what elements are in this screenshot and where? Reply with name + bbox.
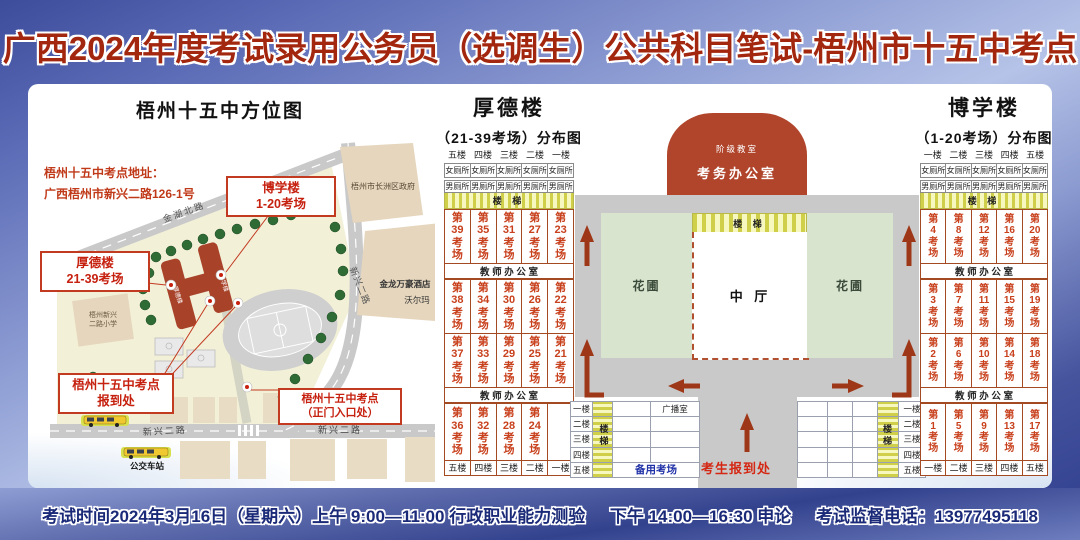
bus-icon-2 (121, 447, 171, 459)
exam-room-cell: 第 6 考 场 (945, 333, 971, 388)
exam-room-cell: 第 2 考 场 (920, 333, 946, 388)
floor-label: 五楼 (444, 460, 471, 476)
houde-male-toilets: 男厕所 男厕所 男厕所 男厕所 男厕所 (444, 180, 574, 193)
garden-right: 花圃 (807, 213, 893, 358)
houde-floors-bottom: 五楼 四楼 三楼 二楼 一楼 (444, 460, 574, 476)
floor-label: 四楼 (997, 148, 1023, 162)
exam-room-cell: 第 13 考 场 (996, 403, 1022, 461)
checkin-label: 考生报到处 (701, 458, 771, 477)
annex-stairs-cell (593, 432, 613, 447)
floor-label: 二楼 (946, 148, 972, 162)
callout-boxue: 博学楼 1-20考场 (226, 176, 336, 217)
annex-stairs-cell (593, 402, 613, 417)
exam-room-cell: 第 31 考 场 (496, 209, 523, 264)
annex-stairs-cell (878, 417, 899, 432)
boxue-male-toilets: 男厕所 男厕所 男厕所 男厕所 男厕所 (920, 180, 1048, 193)
floor-label: 二楼 (521, 460, 548, 476)
exam-room-cell: 第 7 考 场 (945, 279, 971, 334)
female-toilet-cell: 女厕所 (1022, 163, 1048, 178)
female-toilet-cell: 女厕所 (945, 163, 971, 178)
exam-room-cell: 第 12 考 场 (971, 209, 997, 264)
annex-cell (853, 432, 878, 447)
exam-room-cell: 第 32 考 场 (470, 403, 497, 461)
annex-cell (651, 448, 700, 463)
road-bottom (575, 358, 919, 397)
annex-stairs-cell (878, 448, 899, 463)
houde-name: 厚德楼 (419, 92, 599, 122)
exam-room-cell: 第 38 考 场 (444, 279, 471, 334)
boxue-office-1: 教 师 办 公 室 (920, 263, 1048, 279)
floor-label: 一楼 (920, 460, 946, 476)
exam-room-cell: 第 11 考 场 (971, 279, 997, 334)
exam-room-cell: 第 29 考 场 (496, 333, 523, 388)
exam-room-cell: 第 28 考 场 (496, 403, 523, 461)
exam-room-cell: 第 35 考 场 (470, 209, 497, 264)
footer-session2: 下午 14:00—16:30 申论 (610, 502, 791, 527)
annex-stairs-cell (593, 448, 613, 463)
boxue-office-2: 教 师 办 公 室 (920, 387, 1048, 403)
annex-cell (613, 402, 651, 417)
exam-room-cell: 第 25 考 场 (521, 333, 548, 388)
road-label-xinxing-bottom-left: 新兴二路 (143, 424, 188, 437)
boxue-exam-row-3: 第 2 考 场 第 6 考 场 第 10 考 场 第 14 考 场 第 18 考… (920, 333, 1048, 388)
page-title: 广西2024年度考试录用公务员（选调生）公共科目笔试-梧州市十五中考点 (0, 22, 1080, 70)
floor-label: 四楼 (996, 460, 1022, 476)
exam-room-cell: 第 27 考 场 (521, 209, 548, 264)
floor-label: 三楼 (496, 148, 522, 162)
boxue-floors-bottom: 一楼 二楼 三楼 四楼 五楼 (920, 460, 1048, 476)
female-toilet-cell: 女厕所 (971, 163, 997, 178)
bus-station-label-2: 公交车站 (130, 461, 165, 471)
map-title: 梧州十五中方位图 (70, 96, 370, 123)
boxue-floors-top: 一楼 二楼 三楼 四楼 五楼 (920, 148, 1048, 162)
exam-room-cell: 第 18 考 场 (1022, 333, 1048, 388)
exam-room-cell: 第 30 考 场 (496, 279, 523, 334)
footer-session1: 考试时间2024年3月16日（星期六）上午 9:00—11:00 行政职业能力测… (42, 502, 585, 527)
houde-exam-row-1: 第 39 考 场 第 35 考 场 第 31 考 场 第 27 考 场 第 23… (444, 209, 574, 264)
exam-room-cell: 第 21 考 场 (547, 333, 574, 388)
annex-cell (798, 432, 828, 447)
annex-cell (828, 417, 853, 432)
annex-cell (853, 463, 878, 478)
exam-room-cell: 第 14 考 场 (996, 333, 1022, 388)
exam-room-cell: 第 1 考 场 (920, 403, 946, 461)
exam-room-cell: 第 34 考 场 (470, 279, 497, 334)
exam-room-cell: 第 22 考 场 (547, 279, 574, 334)
houde-exam-row-4: 第 36 考 场 第 32 考 场 第 28 考 场 第 24 考 场 (444, 403, 574, 461)
annex-cell (613, 432, 651, 447)
annex-cell (651, 432, 700, 447)
hotel-building (357, 223, 435, 321)
boxue-stairs: 楼 梯 (920, 192, 1048, 209)
male-toilet-cell: 男厕所 (547, 180, 574, 193)
annex-cell (798, 448, 828, 463)
footer-bar: 考试时间2024年3月16日（星期六）上午 9:00—11:00 行政职业能力测… (0, 488, 1080, 540)
male-toilet-cell: 男厕所 (444, 180, 471, 193)
houde-office-2: 教 师 办 公 室 (444, 387, 574, 403)
floor-label: 四楼 (470, 460, 497, 476)
exam-room-cell: 第 26 考 场 (521, 279, 548, 334)
male-toilet-cell: 男厕所 (470, 180, 497, 193)
annex-cell (613, 417, 651, 432)
houde-header: 厚德楼 （21-39考场）分布图 (419, 92, 599, 148)
annex-floor-label: 二楼 (571, 417, 593, 432)
annex-cell (853, 417, 878, 432)
female-toilet-cell: 女厕所 (496, 163, 523, 178)
annex-floor-label: 四楼 (571, 448, 593, 463)
right-annex-table: 一楼 二楼 三楼 四楼 五楼 (797, 401, 926, 478)
exam-room-cell: 第 3 考 场 (920, 279, 946, 334)
houde-subtitle: （21-39考场）分布图 (419, 128, 599, 148)
footer-phone: 考试监督电话：13977495118 (816, 502, 1038, 527)
backup-room-cell: 备用考场 (613, 463, 700, 478)
annex-stairs-cell (878, 463, 899, 478)
annex-floor-label: 五楼 (571, 463, 593, 478)
annex-stairs-cell (593, 463, 613, 478)
government-label: 梧州市长洲区政府 (351, 181, 415, 191)
exam-office-label: 考务办公室 (667, 163, 807, 182)
male-toilet-cell: 男厕所 (996, 180, 1022, 193)
hotel-label: 金龙万豪酒店 (378, 279, 431, 289)
exam-room-cell: 第 39 考 场 (444, 209, 471, 264)
annex-cell (853, 402, 878, 417)
exam-room-cell: 第 24 考 场 (521, 403, 548, 461)
exam-room-cell: 第 10 考 场 (971, 333, 997, 388)
female-toilet-cell: 女厕所 (547, 163, 574, 178)
houde-office-1: 教 师 办 公 室 (444, 263, 574, 279)
broadcast-room-cell: 广播室 (651, 402, 700, 417)
left-annex-table: 一楼广播室 二楼 三楼 四楼 五楼备用考场 (570, 401, 700, 478)
boxue-table: 一楼 二楼 三楼 四楼 五楼 女厕所 女厕所 女厕所 女厕所 女厕所 男厕所 男… (920, 148, 1048, 476)
male-toilet-cell: 男厕所 (945, 180, 971, 193)
female-toilet-cell: 女厕所 (996, 163, 1022, 178)
bus-icon-1 (81, 415, 129, 427)
exam-room-cell: 第 9 考 场 (971, 403, 997, 461)
garden-left: 花圃 (601, 213, 692, 358)
walmart-label: 沃尔玛 (404, 295, 430, 305)
annex-cell (798, 463, 828, 478)
annex-cell (828, 463, 853, 478)
boxue-exam-row-2: 第 3 考 场 第 7 考 场 第 11 考 场 第 15 考 场 第 19 考… (920, 279, 1048, 334)
floor-label: 三楼 (496, 460, 523, 476)
boxue-name: 博学楼 (894, 92, 1074, 122)
houde-female-toilets: 女厕所 女厕所 女厕所 女厕所 女厕所 (444, 163, 574, 178)
center-stairs: 楼 梯 (692, 213, 807, 234)
boxue-exam-row-1: 第 4 考 场 第 8 考 场 第 12 考 场 第 16 考 场 第 20 考… (920, 209, 1048, 264)
exam-room-cell: 第 23 考 场 (547, 209, 574, 264)
male-toilet-cell: 男厕所 (1022, 180, 1048, 193)
callout-gate: 梧州十五中考点 （正门入口处） (278, 388, 402, 425)
annex-cell (828, 448, 853, 463)
boxue-header: 博学楼 （1-20考场）分布图 (894, 92, 1074, 148)
annex-cell (651, 417, 700, 432)
callout-checkin: 梧州十五中考点 报到处 (58, 373, 174, 414)
boxue-subtitle: （1-20考场）分布图 (894, 128, 1074, 148)
annex-stairs-cell (878, 402, 899, 417)
exam-room-cell: 第 5 考 场 (945, 403, 971, 461)
female-toilet-cell: 女厕所 (920, 163, 946, 178)
floor-label: 二楼 (945, 460, 971, 476)
male-toilet-cell: 男厕所 (920, 180, 946, 193)
floor-label: 五楼 (444, 148, 470, 162)
floor-label: 二楼 (522, 148, 548, 162)
exam-room-cell: 第 17 考 场 (1022, 403, 1048, 461)
male-toilet-cell: 男厕所 (521, 180, 548, 193)
floor-label: 三楼 (971, 460, 997, 476)
annex-cell (798, 402, 828, 417)
exam-room-cell: 第 20 考 场 (1022, 209, 1048, 264)
female-toilet-cell: 女厕所 (444, 163, 471, 178)
annex-floor-label: 一楼 (571, 402, 593, 417)
female-toilet-cell: 女厕所 (470, 163, 497, 178)
exam-office-building: 阶级教室 考务办公室 (667, 113, 807, 195)
floor-label: 四楼 (470, 148, 496, 162)
male-toilet-cell: 男厕所 (496, 180, 523, 193)
boxue-female-toilets: 女厕所 女厕所 女厕所 女厕所 女厕所 (920, 163, 1048, 178)
primary-school-label-1: 梧州新兴 (89, 310, 117, 319)
road-top (575, 195, 919, 213)
lecture-hall-label: 阶级教室 (667, 143, 807, 155)
poster: 广西2024年度考试录用公务员（选调生）公共科目笔试-梧州市十五中考点 梧州十五… (0, 0, 1080, 540)
houde-exam-row-3: 第 37 考 场 第 33 考 场 第 29 考 场 第 25 考 场 第 21… (444, 333, 574, 388)
exam-room-cell: 第 16 考 场 (996, 209, 1022, 264)
road-label-xinxing-bottom-right: 新兴二路 (318, 424, 362, 435)
central-hall: 中 厅 (692, 232, 809, 360)
female-toilet-cell: 女厕所 (521, 163, 548, 178)
floor-label: 五楼 (1022, 148, 1048, 162)
annex-cell (828, 432, 853, 447)
annex-cell (828, 402, 853, 417)
exam-room-cell: 第 8 考 场 (945, 209, 971, 264)
annex-floor-label: 三楼 (571, 432, 593, 447)
floor-label: 五楼 (1022, 460, 1048, 476)
annex-cell (798, 417, 828, 432)
houde-table: 五楼 四楼 三楼 二楼 一楼 女厕所 女厕所 女厕所 女厕所 女厕所 男厕所 男… (444, 148, 574, 476)
exam-room-cell: 第 4 考 场 (920, 209, 946, 264)
houde-exam-row-2: 第 38 考 场 第 34 考 场 第 30 考 场 第 26 考 场 第 22… (444, 279, 574, 334)
floor-label: 一楼 (548, 148, 574, 162)
annex-stairs-cell (878, 432, 899, 447)
exam-room-cell: 第 36 考 场 (444, 403, 471, 461)
annex-cell (853, 448, 878, 463)
male-toilet-cell: 男厕所 (971, 180, 997, 193)
primary-school-label-2: 二路小学 (89, 319, 117, 328)
exam-room-cell: 第 19 考 场 (1022, 279, 1048, 334)
annex-stairs-cell (593, 417, 613, 432)
exam-room-cell: 第 33 考 场 (470, 333, 497, 388)
floor-label: 三楼 (971, 148, 997, 162)
houde-floors-top: 五楼 四楼 三楼 二楼 一楼 (444, 148, 574, 162)
floor-label: 一楼 (920, 148, 946, 162)
boxue-exam-row-4: 第 1 考 场 第 5 考 场 第 9 考 场 第 13 考 场 第 17 考 … (920, 403, 1048, 461)
annex-cell (613, 448, 651, 463)
exam-room-cell: 第 15 考 场 (996, 279, 1022, 334)
callout-houde: 厚德楼 21-39考场 (40, 251, 150, 292)
houde-stairs: 楼 梯 (444, 192, 574, 209)
primary-school-building (72, 293, 134, 346)
exam-room-cell: 第 37 考 场 (444, 333, 471, 388)
